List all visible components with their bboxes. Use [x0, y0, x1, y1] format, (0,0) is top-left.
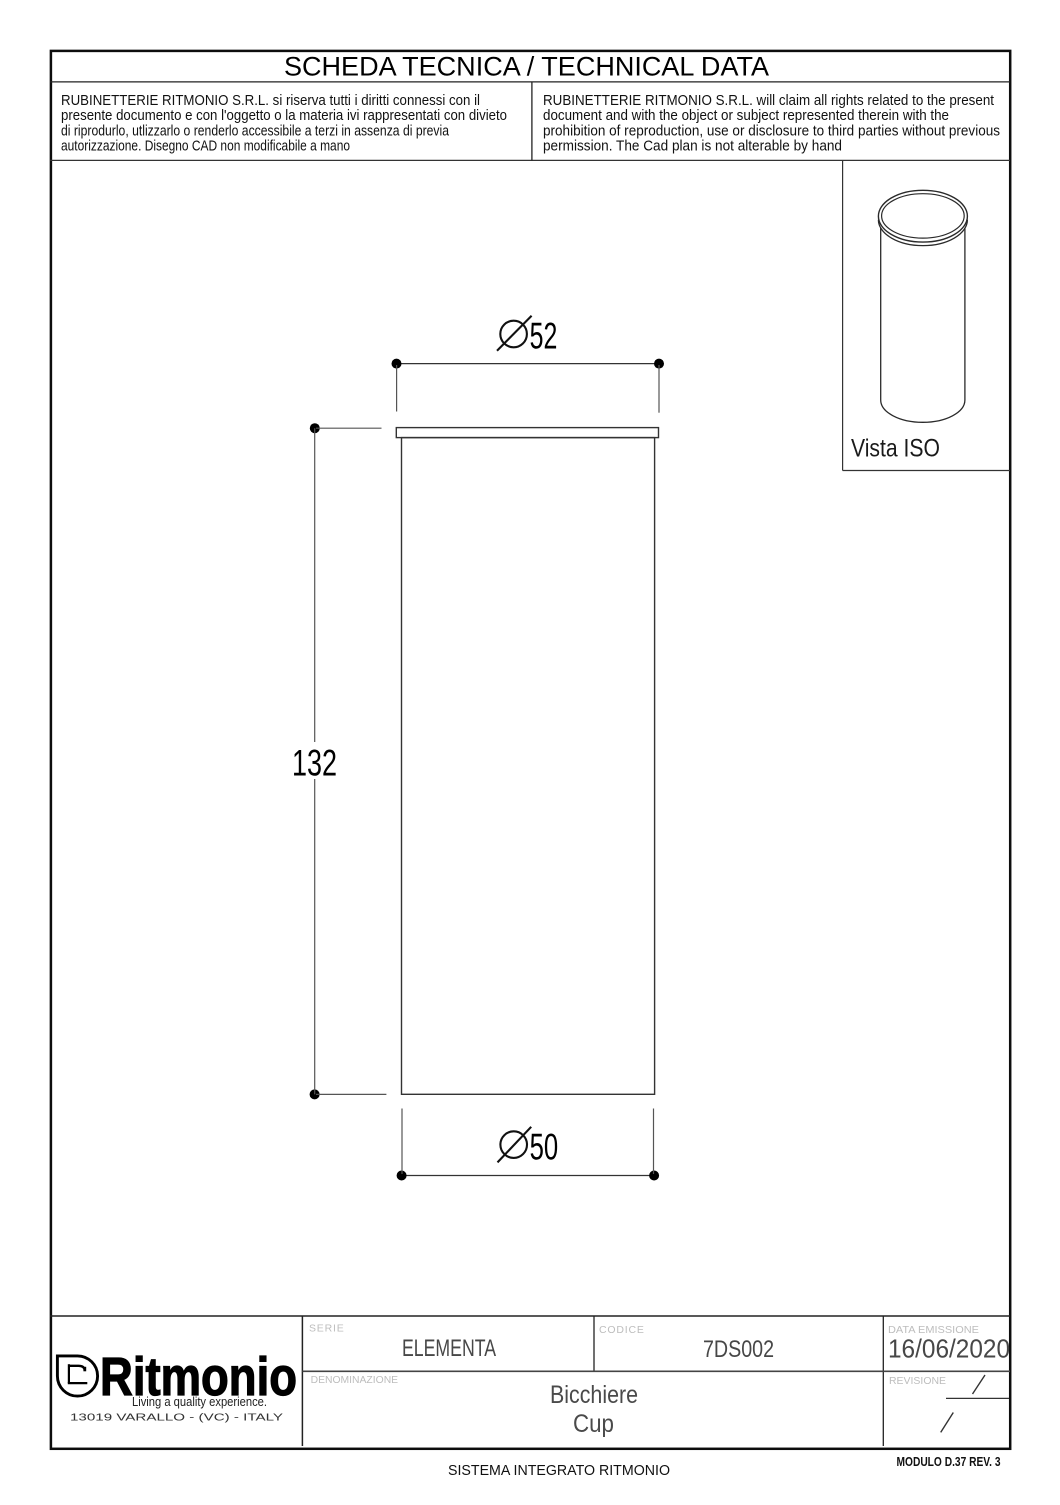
- svg-text:autorizzazione. Disegno CAD no: autorizzazione. Disegno CAD non modifica…: [61, 138, 350, 155]
- svg-text:Living a quality experience.: Living a quality experience.: [132, 1395, 267, 1409]
- svg-text:permission. The Cad plan is n: permission. The Cad plan is not alterabl…: [543, 138, 842, 155]
- svg-text:DATA EMISSIONE: DATA EMISSIONE: [888, 1324, 979, 1336]
- svg-text:52: 52: [530, 315, 558, 356]
- svg-text:MODULO D.37 REV. 3: MODULO D.37 REV. 3: [897, 1455, 1001, 1469]
- svg-text:Vista ISO: Vista ISO: [851, 435, 940, 463]
- svg-text:Cup: Cup: [573, 1410, 614, 1438]
- svg-text:CODICE: CODICE: [599, 1324, 645, 1336]
- svg-text:7DS002: 7DS002: [703, 1337, 774, 1363]
- svg-text:REVISIONE: REVISIONE: [889, 1375, 946, 1387]
- svg-text:SISTEMA INTEGRATO RITMONIO: SISTEMA INTEGRATO RITMONIO: [448, 1462, 670, 1479]
- svg-text:13019 VARALLO - (VC) - ITALY: 13019 VARALLO - (VC) - ITALY: [70, 1412, 283, 1424]
- svg-text:50: 50: [530, 1127, 559, 1168]
- svg-text:Bicchiere: Bicchiere: [550, 1381, 638, 1409]
- svg-text:SERIE: SERIE: [309, 1323, 345, 1335]
- svg-text:ELEMENTA: ELEMENTA: [402, 1336, 496, 1362]
- svg-text:16/06/2020: 16/06/2020: [888, 1336, 1010, 1364]
- svg-text:DENOMINAZIONE: DENOMINAZIONE: [311, 1374, 399, 1386]
- svg-text:SCHEDA TECNICA / TECHNICAL DAT: SCHEDA TECNICA / TECHNICAL DATA: [284, 51, 769, 81]
- svg-text:132: 132: [292, 743, 337, 784]
